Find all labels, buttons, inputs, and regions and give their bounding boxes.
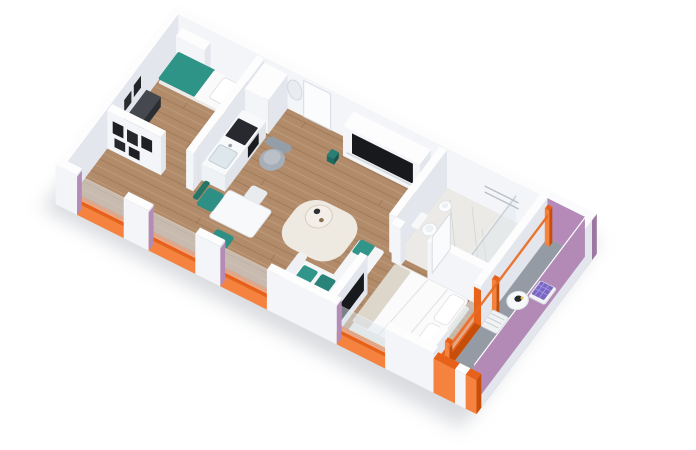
apartment-3d-floorplan-render [0,0,696,450]
floorplan-scene [0,0,696,450]
small-room-front-wall-b [186,143,198,191]
window-reveal-3 [220,242,225,286]
balcony-rail-orange-2 [466,368,482,414]
window-reveal-1 [77,171,82,215]
balcony-post-1 [545,205,553,247]
window-reveal-4 [337,300,342,344]
window-reveal-2 [149,206,154,250]
bathroom-front-wall-a [392,217,406,266]
